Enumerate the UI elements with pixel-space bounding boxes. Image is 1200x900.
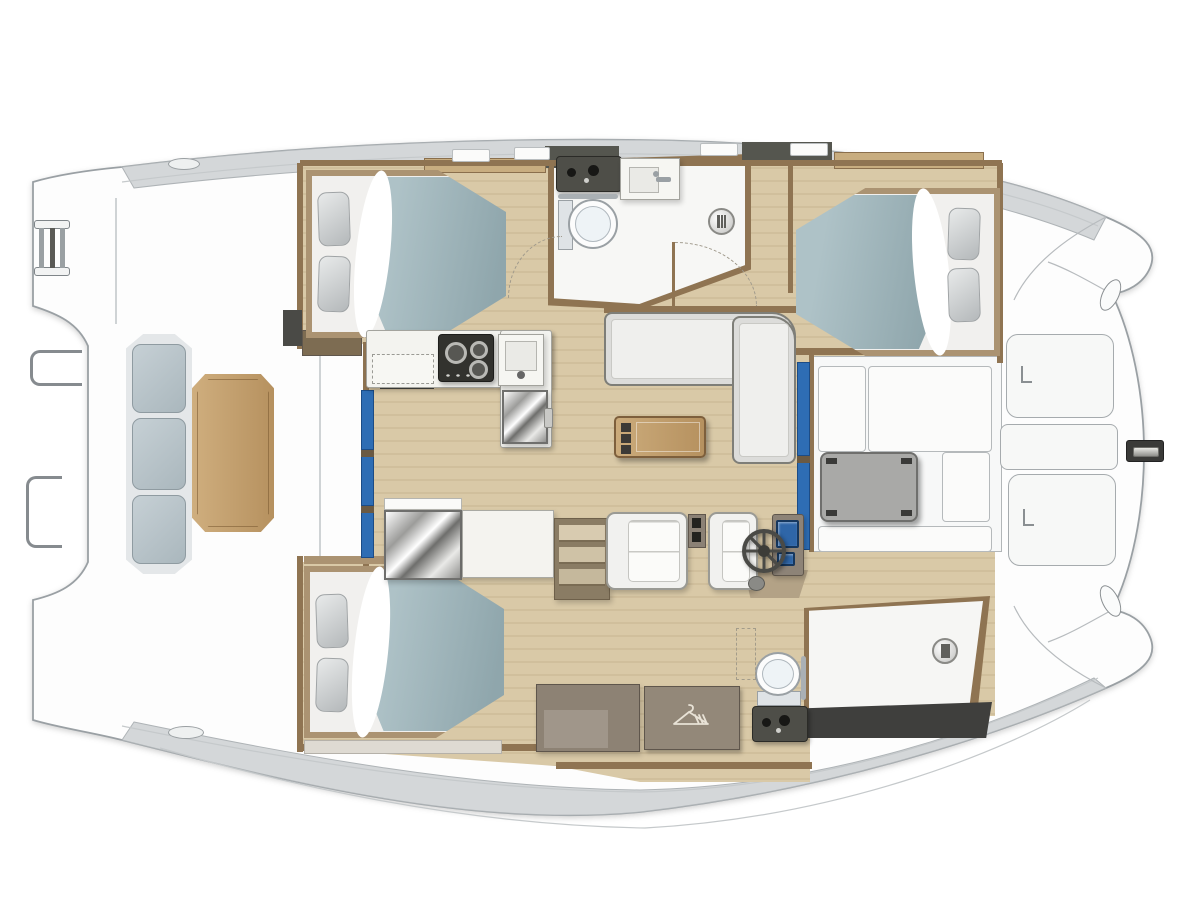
galley-fridge — [502, 390, 548, 444]
door-sep-2 — [361, 506, 374, 513]
companionway-stairs — [554, 518, 610, 600]
helm-seat — [606, 512, 688, 590]
bow-table — [820, 452, 918, 522]
catamaran-floorplan — [0, 0, 1200, 900]
salon-sofa-short — [732, 316, 796, 464]
bed-aft-port — [304, 566, 504, 738]
bow-seat-right — [942, 452, 990, 522]
galley-sink — [498, 334, 544, 386]
cockpit-bench — [126, 334, 192, 574]
galley-stove — [438, 334, 494, 382]
anchor-windlass — [1126, 440, 1164, 462]
aft-towel-bar — [801, 656, 806, 700]
sliding-door-stbd-1 — [797, 362, 810, 456]
sliding-door-port-2 — [361, 456, 374, 506]
cockpit-table — [192, 374, 274, 532]
pillow-fs-2 — [947, 267, 981, 322]
salon-coffee-table — [614, 416, 706, 458]
roof-hatch-1 — [452, 149, 490, 162]
bow-bench-bottom — [818, 526, 992, 552]
wall-bottom-mid — [556, 762, 812, 769]
foredeck-hatch-bottom — [1008, 474, 1116, 566]
pillow-ap-1 — [315, 593, 349, 648]
bath-vanity — [556, 156, 622, 192]
pillow-fp-1 — [317, 191, 351, 246]
bow-seat-top — [868, 366, 992, 452]
hatch-arrow-dashed — [736, 628, 756, 680]
pillow-ap-2 — [315, 657, 349, 712]
deck-seam-2 — [115, 198, 117, 324]
foredeck-hatch-top — [1006, 334, 1114, 418]
sideboard-counter — [462, 510, 554, 578]
helm-wheel — [742, 529, 786, 573]
roof-hatch-4 — [790, 143, 828, 156]
stern-rail-lower — [26, 476, 62, 548]
door-sep-1 — [361, 450, 374, 457]
shelf-aft-port — [304, 740, 502, 754]
bath-sink — [620, 158, 680, 200]
wall-left-aft — [297, 556, 303, 752]
helm-compass — [748, 576, 765, 591]
bath-toilet — [558, 198, 620, 250]
sliding-door-port-3 — [361, 512, 374, 558]
shower-drain-aft — [932, 638, 958, 664]
stern-rail-upper — [30, 350, 82, 386]
aft-cabinet-inset — [544, 710, 608, 748]
sideboard-top — [384, 498, 462, 510]
sliding-door-port-1 — [361, 390, 374, 450]
foredeck-locker-mid — [1000, 424, 1118, 470]
galley-worktop-dashed — [372, 354, 434, 384]
aft-vanity — [752, 706, 808, 742]
helm-drawers — [688, 514, 706, 548]
roof-hatch-2 — [514, 147, 550, 160]
companionway-dark — [283, 310, 302, 346]
deck-seam-1 — [319, 334, 321, 560]
sideboard-mirror — [384, 510, 462, 580]
aft-toilet — [754, 650, 802, 706]
wall-corridor-right — [788, 163, 793, 293]
cleat-aft-bottom — [168, 726, 204, 739]
pillow-fp-2 — [317, 255, 351, 312]
door-sep-3 — [797, 456, 810, 463]
cleat-aft-top — [168, 158, 200, 170]
boarding-ladder — [34, 220, 70, 276]
roof-hatch-3 — [700, 143, 738, 156]
shower-drain-fwd — [708, 208, 735, 235]
hanging-locker — [644, 686, 740, 750]
bow-seat-left — [818, 366, 866, 452]
pillow-fs-1 — [947, 207, 981, 260]
